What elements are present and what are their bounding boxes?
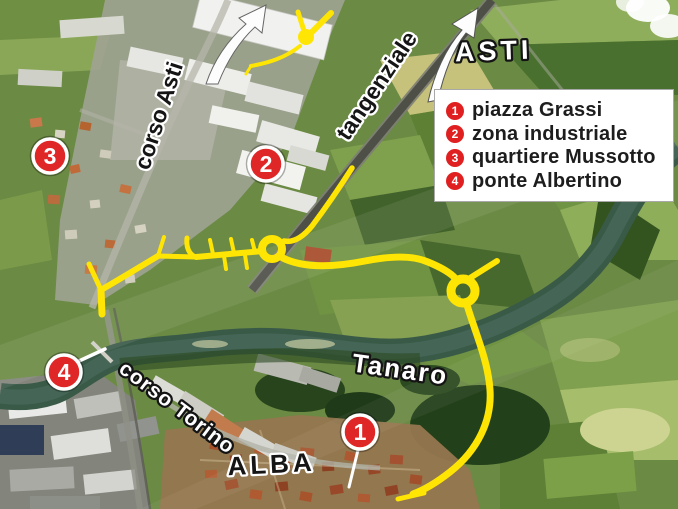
svg-text:1: 1 [354,419,367,445]
svg-text:2: 2 [260,151,273,177]
legend-item-quartiere-mussotto: 3 quartiere Mussotto [446,146,663,169]
legend-item-zona-industriale: 2 zona industriale [446,123,663,146]
svg-text:3: 3 [44,143,57,169]
label-alba-city: ALBA [227,447,317,482]
legend-number-badge: 2 [446,125,464,143]
map-image: corso Asti tangenziale ASTI Tanaro corso… [0,0,678,509]
legend-number-badge: 3 [446,149,464,167]
marker-quartiere-mussotto: 3 [31,137,70,176]
legend-number-badge: 4 [446,172,464,190]
marker-ponte-albertino: 4 [45,353,84,392]
legend-item-ponte-albertino: 4 ponte Albertino [446,170,663,193]
marker-zona-industriale: 2 [247,145,286,184]
legend-item-piazza-grassi: 1 piazza Grassi [446,99,663,122]
legend-box: 1 piazza Grassi 2 zona industriale 3 qua… [434,89,674,202]
label-asti-direction: ASTI [454,35,533,68]
legend-item-label: ponte Albertino [472,170,622,193]
map-canvas: corso Asti tangenziale ASTI Tanaro corso… [0,0,678,509]
legend-item-label: quartiere Mussotto [472,146,656,169]
legend-item-label: piazza Grassi [472,99,602,122]
legend-number-badge: 1 [446,102,464,120]
marker-piazza-grassi: 1 [341,413,380,452]
svg-text:4: 4 [58,359,71,385]
legend-item-label: zona industriale [472,123,627,146]
